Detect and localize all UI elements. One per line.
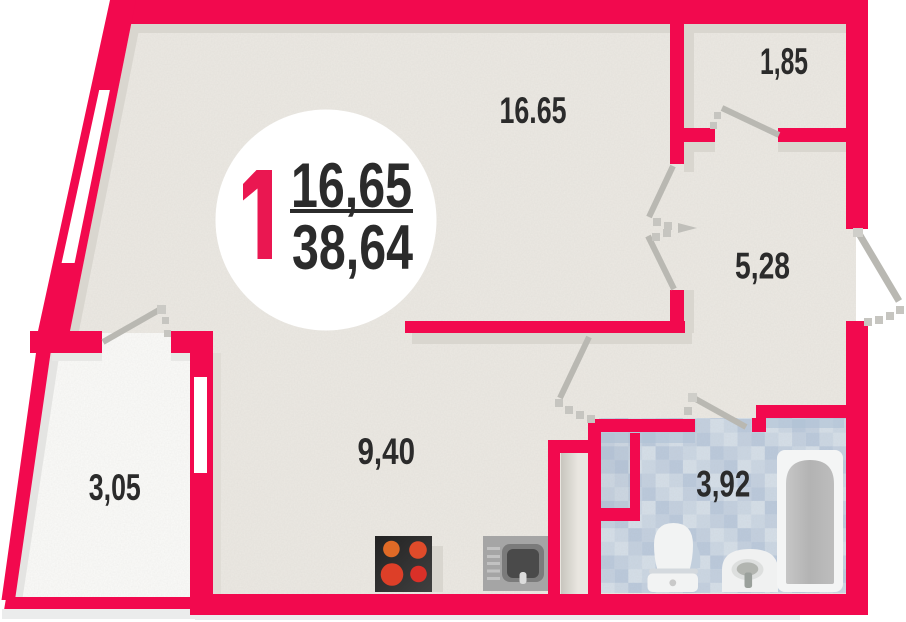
svg-text:5,28: 5,28: [735, 246, 790, 287]
svg-text:3,05: 3,05: [89, 467, 141, 508]
svg-text:16.65: 16.65: [500, 90, 567, 131]
svg-text:1,85: 1,85: [760, 41, 808, 82]
svg-text:3,92: 3,92: [696, 464, 750, 505]
svg-text:38,64: 38,64: [292, 213, 413, 283]
svg-text:9,40: 9,40: [358, 431, 416, 472]
